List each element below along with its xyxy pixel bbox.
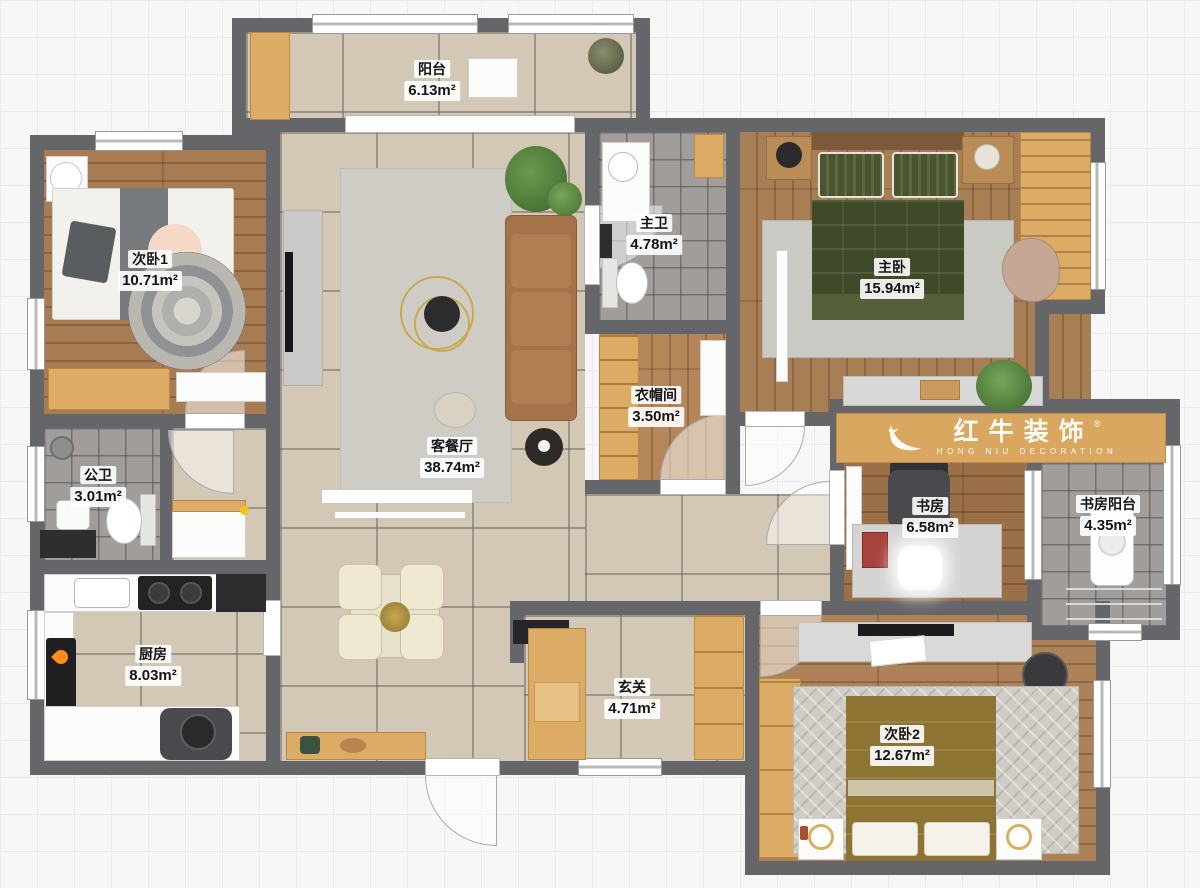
master-nightstand-lamp [776, 142, 802, 168]
watermark-registered-mark: ® [1094, 419, 1101, 429]
sofa-cushion [511, 292, 571, 346]
room-label-entry: 玄关 4.71m² [604, 678, 660, 719]
ceiling-light-bar [322, 490, 472, 503]
room-label-balcony: 阳台 6.13m² [404, 60, 460, 101]
stove-burner [180, 582, 202, 604]
side-table-cup [538, 440, 550, 452]
room-label-bedroom1: 次卧1 10.71m² [118, 250, 182, 291]
room-label-master-bedroom: 主卧 15.94m² [860, 258, 924, 299]
master-console-item [920, 380, 960, 400]
bedroom2-lamp [808, 824, 834, 850]
bedroom1-bench[interactable] [48, 368, 170, 410]
main-entry-door-swing [425, 776, 497, 846]
study-desk-lamp [898, 546, 942, 590]
coffee-table-tray [424, 296, 460, 332]
window [27, 610, 45, 700]
wall [745, 601, 759, 875]
bedroom2-pillow [852, 822, 918, 856]
bedroom2-bed-fold [848, 780, 994, 796]
dining-chair[interactable] [400, 564, 444, 610]
window [312, 14, 478, 34]
wall [30, 560, 280, 574]
window [27, 446, 45, 522]
dining-chair[interactable] [338, 614, 382, 660]
master-bedroom-door[interactable] [745, 411, 805, 427]
window [1088, 623, 1142, 641]
balcony-cabinet[interactable] [250, 32, 290, 120]
kitchen-cabinet-dark[interactable] [216, 574, 266, 612]
window [1163, 445, 1181, 585]
laundry-cabinet[interactable] [172, 504, 246, 558]
room-label-living: 客餐厅 38.74m² [420, 437, 484, 478]
master-bed-pillow [892, 152, 958, 198]
bench-bowl [340, 738, 366, 753]
master-bath-door[interactable] [584, 205, 600, 285]
bedroom2-monitor [858, 624, 954, 636]
stove-burner [148, 582, 170, 604]
master-nightstand-lamp [974, 144, 1000, 170]
public-bath-shower [50, 436, 74, 460]
wall [636, 18, 650, 132]
master-bath-basin [608, 152, 638, 182]
bedroom1-pillow [61, 220, 116, 283]
closet-door[interactable] [660, 479, 726, 495]
dining-centerpiece [380, 602, 410, 632]
room-label-closet: 衣帽间 3.50m² [628, 386, 684, 427]
bedroom2-decor [800, 826, 808, 840]
room-label-master-bath: 主卫 4.78m² [626, 214, 682, 255]
window [508, 14, 634, 34]
master-headboard [812, 132, 964, 150]
sofa-cushion [511, 234, 571, 288]
public-bath-vanity[interactable] [40, 530, 96, 558]
kitchen-sink[interactable] [74, 578, 130, 608]
wall [266, 135, 280, 428]
bedroom2-lamp [1006, 824, 1032, 850]
master-plant[interactable] [976, 360, 1032, 412]
living-plant-small[interactable] [548, 182, 582, 216]
window [27, 298, 45, 370]
wall [745, 861, 1110, 875]
brand-watermark: 红牛装饰® HONG NIU DECORATION [836, 413, 1166, 463]
room-label-bedroom2: 次卧2 12.67m² [870, 725, 934, 766]
balcony-sliding-door[interactable] [345, 115, 575, 133]
window [578, 758, 662, 776]
watermark-brand: 红牛装饰 [954, 418, 1094, 446]
tv-screen [285, 252, 293, 352]
entry-cabinet-right[interactable] [694, 615, 744, 760]
bedroom1-door[interactable] [185, 413, 245, 429]
sofa-cushion [511, 350, 571, 404]
window [1093, 680, 1111, 788]
window [1024, 470, 1042, 580]
wall [585, 320, 740, 334]
window [95, 131, 183, 151]
wall [266, 428, 280, 574]
study-door[interactable] [829, 470, 845, 545]
master-door-swing [745, 426, 805, 486]
room-label-public-bath: 公卫 3.01m² [70, 466, 126, 507]
master-bath-mat [694, 134, 724, 178]
wall [726, 132, 740, 494]
balcony-table[interactable] [468, 58, 518, 98]
main-entry-door[interactable] [425, 758, 500, 776]
public-bath-toilet-tank [140, 494, 156, 546]
bull-logo-icon [885, 419, 927, 457]
room-label-study: 书房 6.58m² [902, 497, 958, 538]
dining-chair[interactable] [338, 564, 382, 610]
study-desk-book [862, 532, 888, 568]
robot-vacuum-disc [180, 714, 216, 750]
entry-cabinet-left-inner [534, 682, 580, 722]
bedroom2-pillow [924, 822, 990, 856]
balcony-plant[interactable] [588, 38, 624, 74]
bedroom1-dresser[interactable] [176, 372, 266, 402]
drying-rack[interactable] [1066, 588, 1162, 620]
bean-bag[interactable] [1002, 238, 1060, 302]
room-label-study-balcony: 书房阳台 4.35m² [1076, 495, 1140, 536]
ceiling-light-bar [335, 512, 465, 518]
watermark-subtitle: HONG NIU DECORATION [937, 448, 1117, 456]
master-bed-pillow [818, 152, 884, 198]
closet-shelf[interactable] [700, 340, 726, 416]
master-bath-toilet-bowl [616, 262, 648, 304]
floor-plan-canvas: 红牛装饰® HONG NIU DECORATION 阳台 6.13m² 次卧1 … [0, 0, 1200, 888]
master-curtain-panel [776, 250, 788, 382]
master-bath-shelf [600, 224, 612, 258]
laundry-knob [240, 506, 249, 515]
bench-plant-pot [300, 736, 320, 754]
wall [232, 18, 246, 132]
bedroom2-door[interactable] [760, 600, 822, 616]
pouf[interactable] [434, 392, 476, 428]
study-door-swing [766, 481, 830, 545]
room-label-kitchen: 厨房 8.03m² [125, 645, 181, 686]
laundry-cabinet-top [172, 500, 246, 512]
